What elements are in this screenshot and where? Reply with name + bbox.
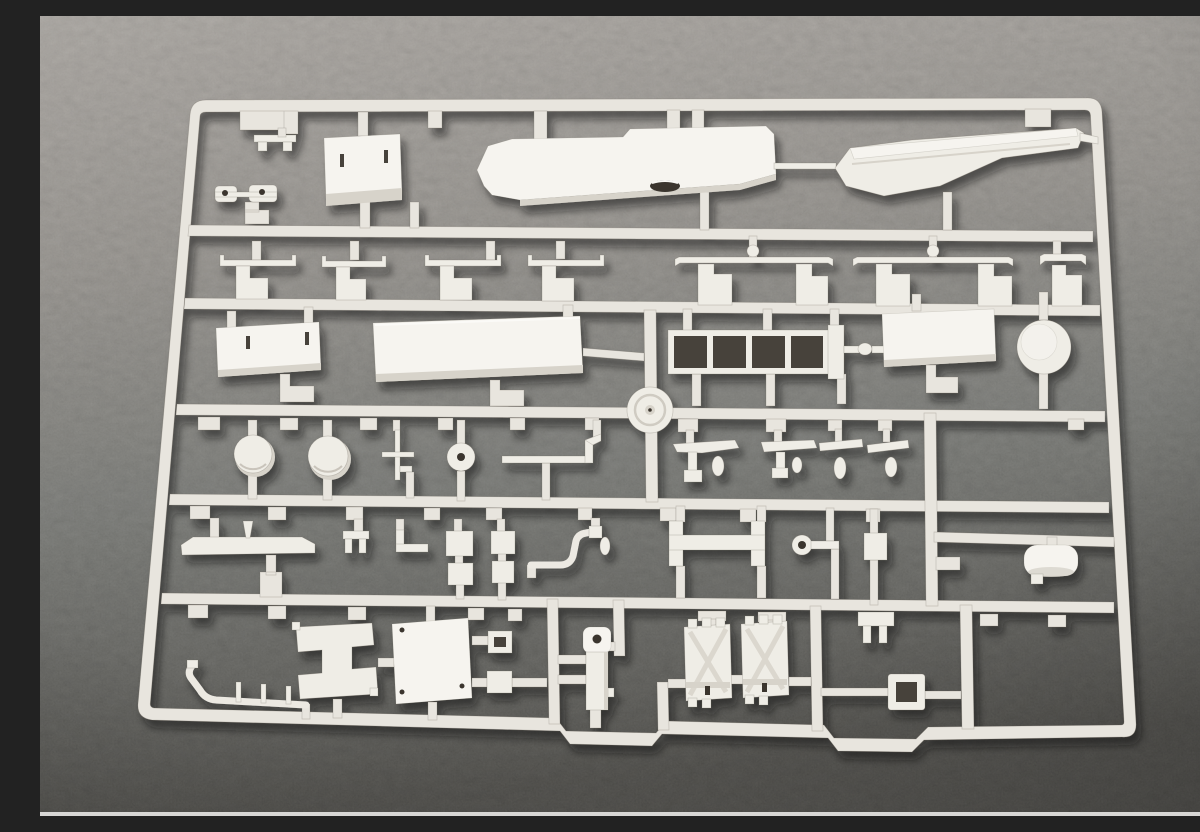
photo-edge-strip (40, 812, 1200, 816)
square-hatch-panel-part (392, 618, 472, 704)
photo-of-model-sprue: Close-up photograph of an unpainted off-… (40, 16, 1200, 816)
small-pad-solid (487, 671, 512, 693)
track-pad-1 (684, 618, 732, 708)
large-deck-slab-part (373, 316, 583, 382)
row6-pad-post (657, 682, 669, 730)
grid-pin (844, 346, 859, 353)
grid-pin-bulb (858, 343, 872, 355)
small-block-part (864, 533, 887, 560)
row6-pad-right-rail (810, 606, 823, 731)
round-disc-part (1017, 320, 1071, 374)
deckhouse-box-part (324, 134, 402, 206)
grid-pin (872, 346, 884, 353)
plain-panel-part (882, 309, 996, 367)
pulley-disc-part (447, 443, 475, 471)
buckle-frame-part (888, 674, 925, 710)
sprue-photo-canvas: Close-up photograph of an unpainted off-… (40, 16, 1200, 816)
row6-right-vertical (960, 605, 974, 729)
small-pad-open (488, 631, 512, 653)
gate-bulb (747, 245, 759, 257)
track-pad-2 (741, 615, 789, 705)
gate-bulb (927, 245, 939, 257)
slotted-panel-part (216, 322, 321, 377)
right-vertical-rail (924, 413, 938, 606)
center-turntable-wheel-part (627, 387, 673, 433)
